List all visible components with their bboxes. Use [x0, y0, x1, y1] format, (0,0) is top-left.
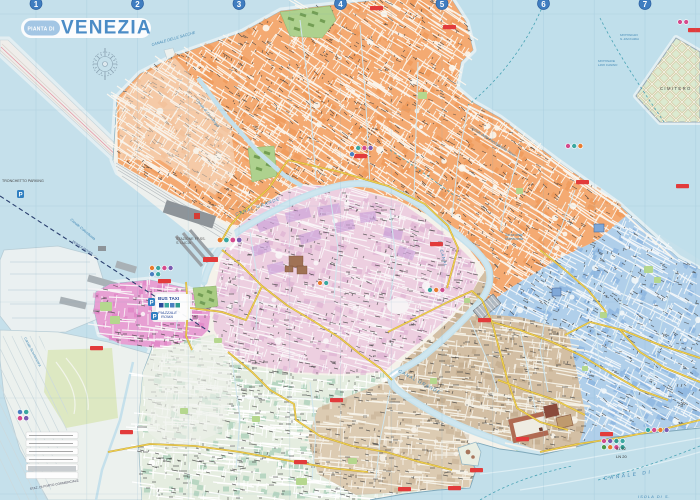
svg-text:P: P: [19, 193, 23, 199]
svg-text:Misericordia: Misericordia: [505, 237, 523, 241]
svg-text:VENEZIA: VENEZIA: [61, 18, 152, 39]
svg-text:P: P: [150, 301, 154, 307]
svg-text:PIANTA DI: PIANTA DI: [28, 27, 55, 33]
svg-text:51 52: 51 52: [616, 446, 627, 451]
svg-text:LIDO CASINO: LIDO CASINO: [598, 63, 618, 67]
svg-text:7: 7: [643, 0, 648, 9]
svg-text:3: 3: [237, 0, 242, 9]
svg-text:ROMA: ROMA: [161, 314, 173, 319]
svg-text:P: P: [153, 315, 157, 321]
svg-text:S. LUCIA: S. LUCIA: [176, 241, 192, 245]
svg-text:5: 5: [440, 0, 445, 9]
svg-text:BUS TAXI: BUS TAXI: [158, 296, 179, 301]
svg-text:6: 6: [541, 0, 546, 9]
svg-text:TRONCHETTO PARKING: TRONCHETTO PARKING: [2, 179, 44, 183]
svg-text:CIMITERO: CIMITERO: [660, 86, 692, 91]
svg-text:1: 1: [34, 0, 39, 9]
svg-text:4: 4: [338, 0, 343, 9]
svg-text:LN 20: LN 20: [616, 454, 627, 459]
svg-text:ISOLA DI S.: ISOLA DI S.: [638, 494, 671, 499]
svg-text:S. ZACCARIA: S. ZACCARIA: [620, 37, 639, 41]
svg-text:2: 2: [135, 0, 140, 9]
